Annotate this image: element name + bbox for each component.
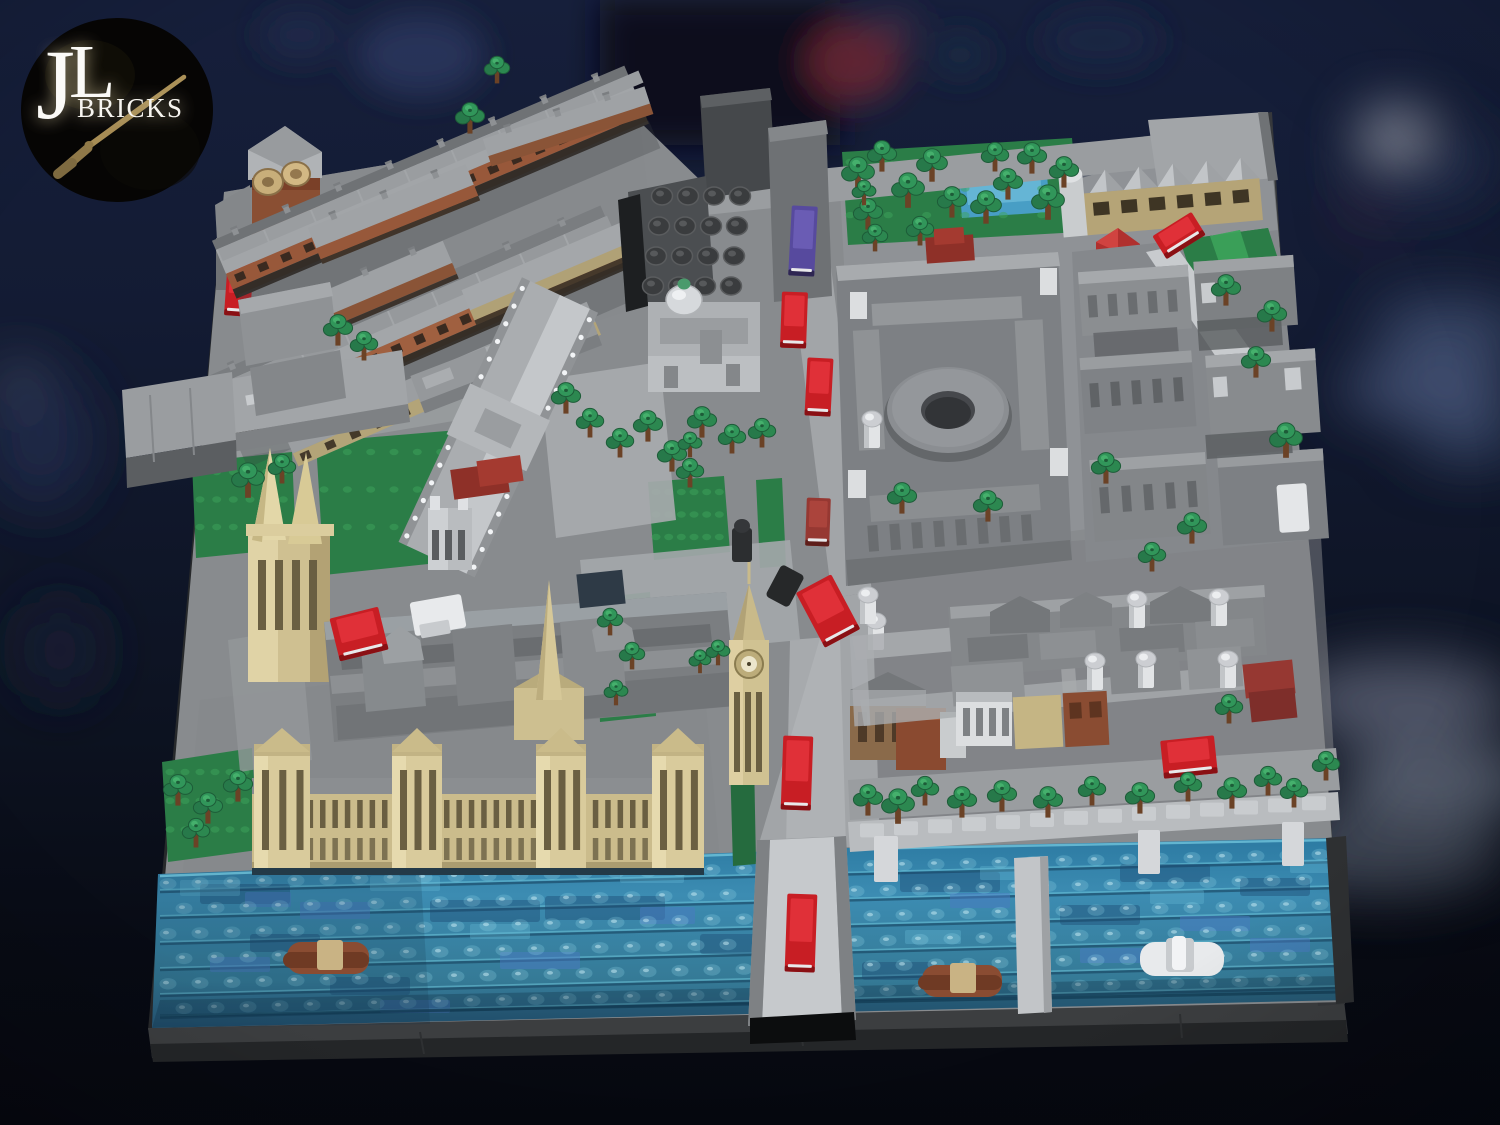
svg-text:BRICKS: BRICKS <box>77 93 184 123</box>
